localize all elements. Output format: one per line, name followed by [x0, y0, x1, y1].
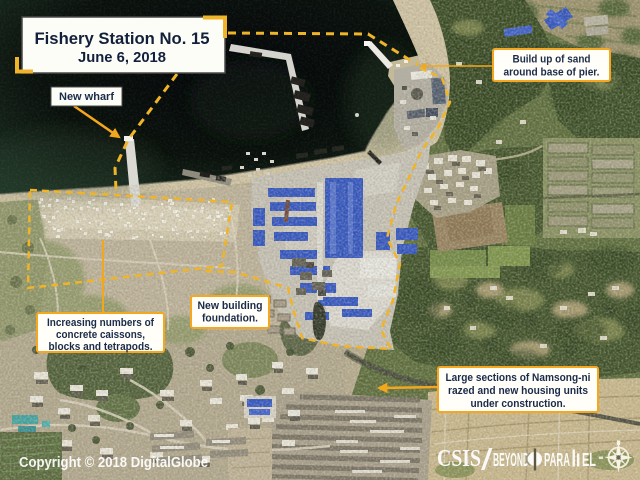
- svg-text:New wharf: New wharf: [59, 91, 114, 103]
- svg-text:Copyright © 2018 DigitalGlobe: Copyright © 2018 DigitalGlobe: [19, 455, 208, 471]
- svg-text:foundation.: foundation.: [202, 313, 258, 325]
- svg-text:June 6, 2018: June 6, 2018: [78, 50, 166, 66]
- svg-text:razed and new housing units: razed and new housing units: [448, 385, 588, 397]
- svg-text:concrete caissons,: concrete caissons,: [56, 329, 145, 341]
- svg-text:CSIS: CSIS: [437, 446, 481, 472]
- svg-text:Fishery Station No. 15: Fishery Station No. 15: [35, 29, 210, 48]
- svg-text:blocks and tetrapods.: blocks and tetrapods.: [49, 341, 153, 353]
- svg-text:Build up of sand: Build up of sand: [513, 54, 591, 66]
- svg-text:around base of pier.: around base of pier.: [504, 67, 600, 79]
- svg-text:Large sections of Namsong-ni: Large sections of Namsong-ni: [446, 372, 591, 384]
- svg-text:PARA: PARA: [544, 450, 570, 470]
- svg-text:New building: New building: [198, 300, 263, 312]
- svg-text:Increasing numbers of: Increasing numbers of: [47, 317, 154, 329]
- svg-text:under construction.: under construction.: [471, 398, 566, 410]
- svg-text:BEYOND: BEYOND: [493, 450, 529, 470]
- svg-text:EL: EL: [582, 450, 596, 470]
